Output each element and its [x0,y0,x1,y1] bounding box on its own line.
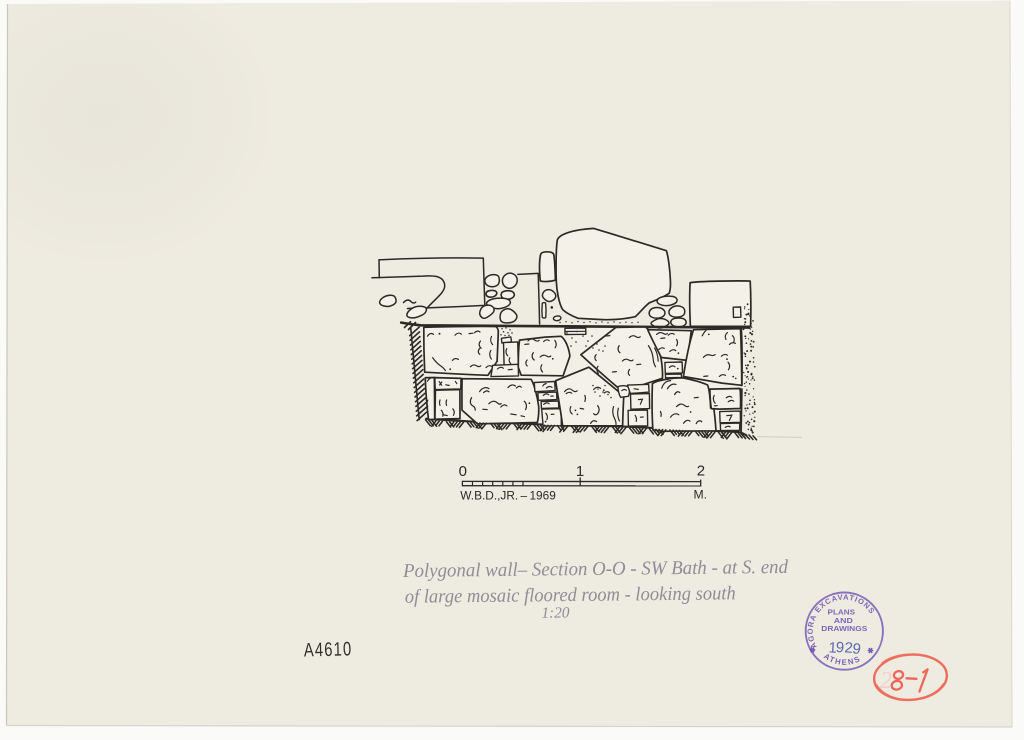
svg-text:W.B.D.,JR. – 1969: W.B.D.,JR. – 1969 [460,488,556,502]
svg-text:Polygonal wall– Section O-O -: Polygonal wall– Section O-O - SW Bath - … [402,557,788,582]
svg-text:2: 2 [880,668,892,694]
svg-text:M.: M. [694,488,708,502]
svg-text:1: 1 [576,463,584,480]
svg-text:of large mosaic floored room: of large mosaic floored room - looking s… [405,583,736,607]
svg-text:1:20: 1:20 [541,604,569,621]
svg-text:2: 2 [697,462,705,479]
svg-text:DRAWINGS: DRAWINGS [821,624,867,633]
svg-text:0: 0 [459,463,467,480]
svg-text:A4610: A4610 [304,638,353,661]
